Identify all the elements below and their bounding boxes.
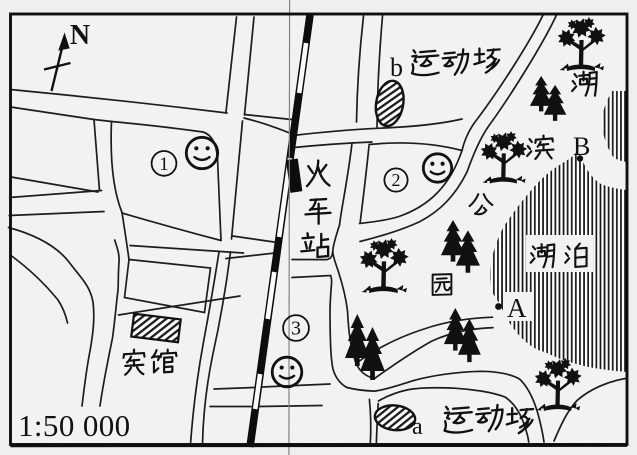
svg-text:a: a <box>412 414 423 440</box>
svg-text:3: 3 <box>291 318 301 340</box>
svg-text:2: 2 <box>392 170 401 190</box>
svg-text:A: A <box>507 293 527 323</box>
svg-text:N: N <box>70 20 90 51</box>
svg-text:B: B <box>573 132 590 161</box>
svg-text:1: 1 <box>159 154 169 175</box>
svg-text:b: b <box>390 53 403 82</box>
svg-text:1:50 000: 1:50 000 <box>18 408 131 443</box>
